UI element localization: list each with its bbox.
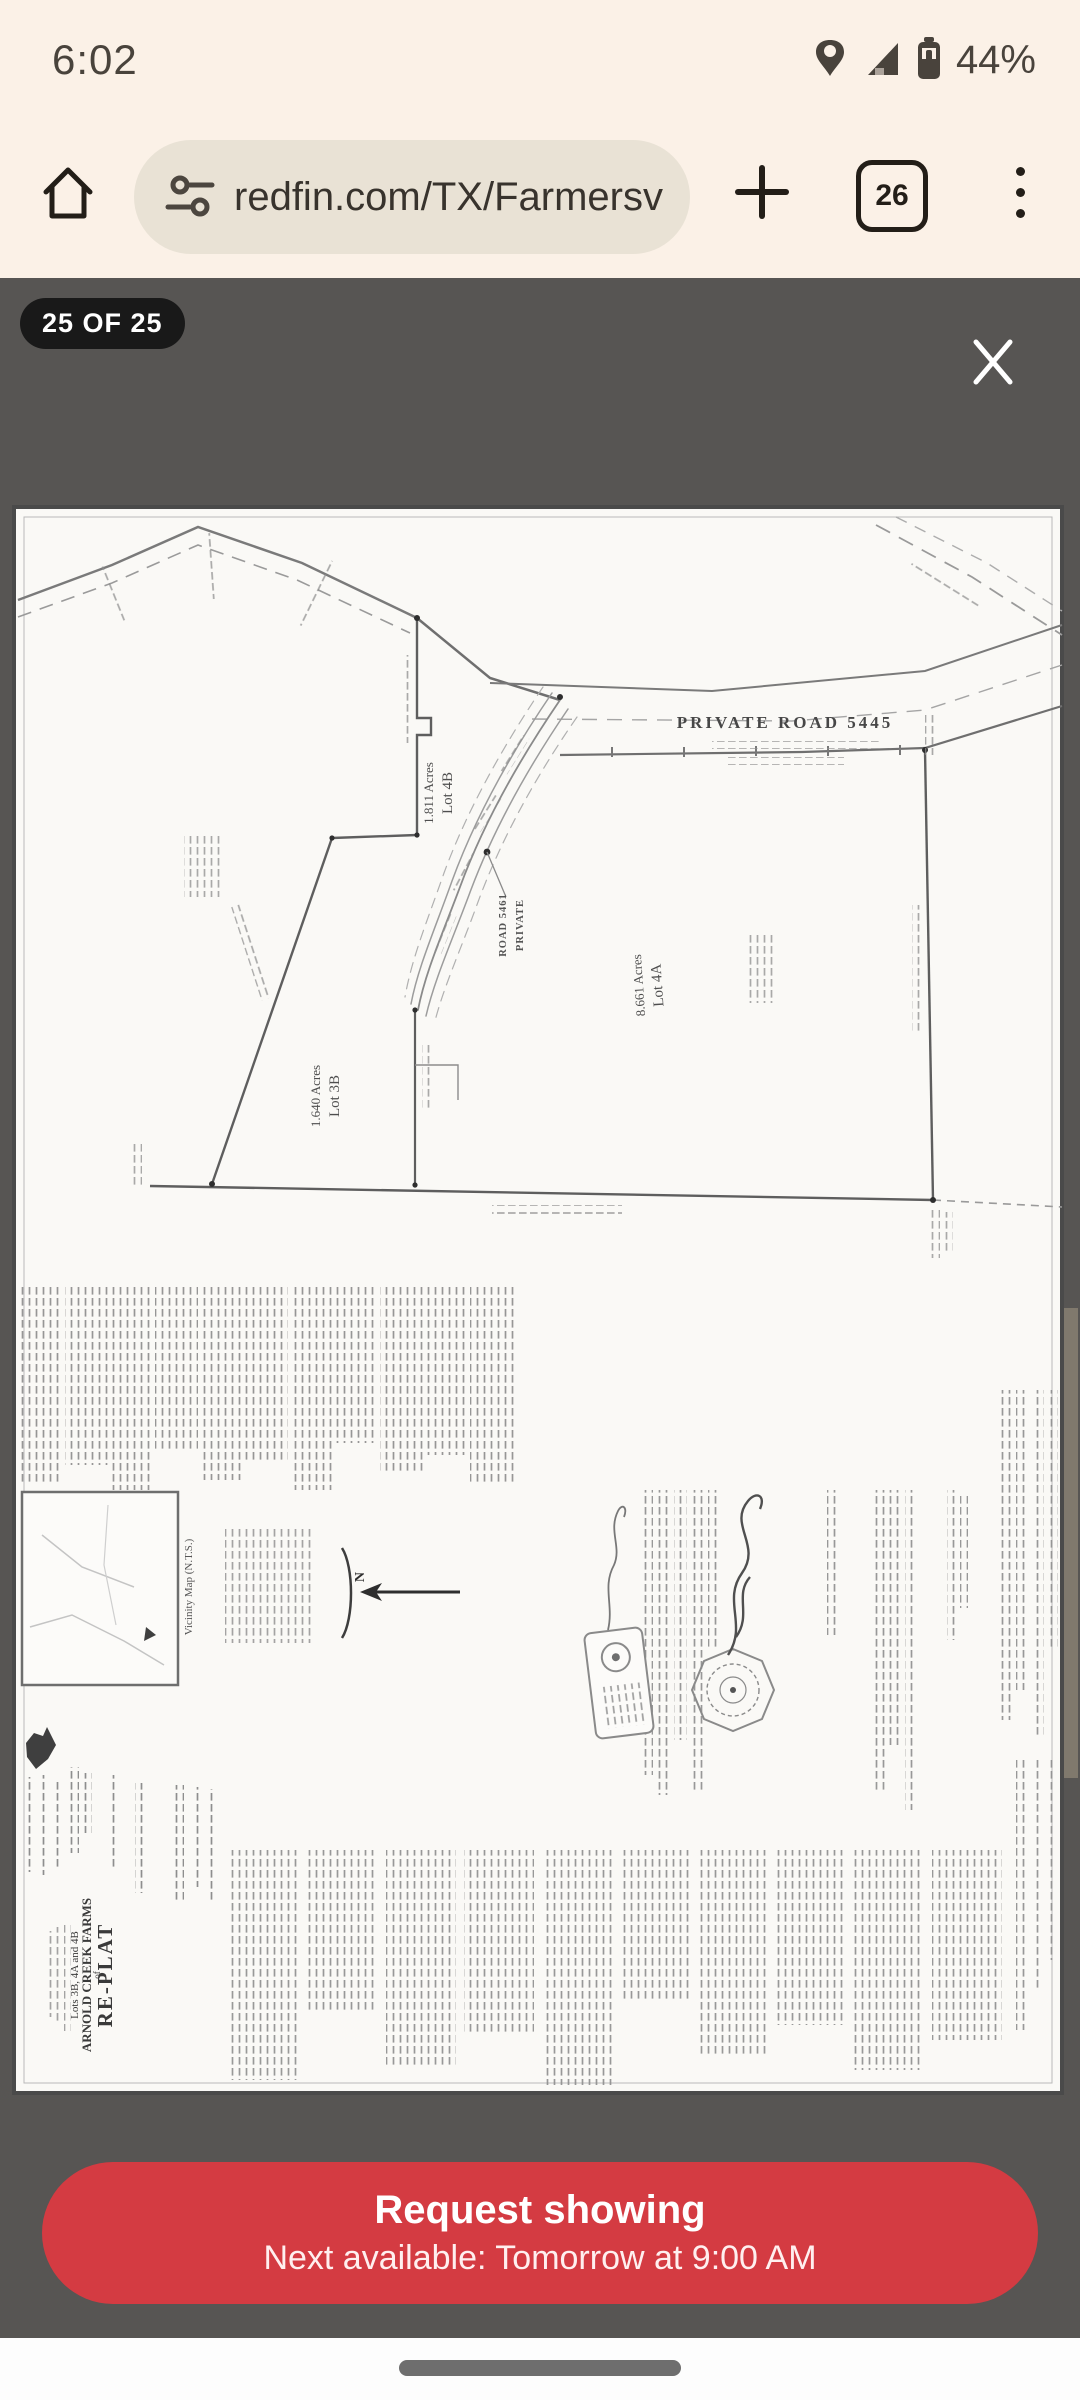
url-bar[interactable]: redfin.com/TX/Farmersv	[134, 140, 690, 254]
plat-notes-block	[230, 1850, 1002, 2085]
private-road-5445-label: PRIVATE ROAD 5445	[677, 713, 894, 732]
browser-toolbar: redfin.com/TX/Farmersv 26	[0, 128, 1080, 268]
plat-title-block: RE-PLAT of ARNOLD CREEK FARMS Lots 3B, 4…	[46, 1898, 117, 2052]
plat-map-photo[interactable]: PRIVATE ROAD 5445 PRIVATE ROAD 5461 Lot …	[12, 505, 1064, 2095]
svg-text:1.811 Acres: 1.811 Acres	[421, 762, 436, 824]
surveyor-company-block	[26, 1727, 217, 1903]
home-handle[interactable]	[399, 2360, 681, 2376]
signal-icon	[862, 37, 904, 84]
new-tab-button[interactable]	[728, 158, 796, 226]
private-road-5461-label: PRIVATE ROAD 5461	[487, 852, 526, 957]
legal-description-block	[20, 1285, 515, 1490]
svg-text:N: N	[353, 1572, 368, 1582]
battery-icon	[916, 35, 942, 86]
signature-2	[728, 1495, 762, 1655]
lot-3b-label: Lot 3B 1.640 Acres	[308, 1065, 343, 1127]
tract-boundary	[150, 618, 1062, 1207]
north-arrow: N	[342, 1548, 460, 1638]
browser-chrome: 6:02 44% redf	[0, 0, 1080, 278]
home-button[interactable]	[36, 162, 100, 226]
svg-text:PRIVATE: PRIVATE	[515, 899, 526, 951]
tab-switcher-button[interactable]: 26	[856, 160, 928, 232]
plat-drawing: PRIVATE ROAD 5445 PRIVATE ROAD 5461 Lot …	[12, 505, 1064, 2095]
survey-annotations	[97, 533, 983, 1258]
next-available-text: Next available: Tomorrow at 9:00 AM	[263, 2239, 816, 2278]
clock: 6:02	[52, 36, 138, 84]
svg-text:Lot 4A: Lot 4A	[649, 963, 668, 1007]
vicinity-map	[22, 1492, 178, 1685]
signature-1	[608, 1507, 625, 1630]
photo-counter-badge: 25 OF 25	[20, 298, 185, 349]
tab-count: 26	[875, 179, 908, 213]
lot-4b-label: Lot 4B 1.811 Acres	[421, 762, 456, 824]
status-bar: 6:02 44%	[0, 30, 1080, 90]
request-showing-label: Request showing	[374, 2188, 705, 2233]
svg-text:Lot 4B: Lot 4B	[440, 772, 456, 814]
scan-edge	[1064, 1308, 1078, 1778]
private-road-5461-band	[405, 687, 577, 1021]
wifi-icon	[810, 36, 850, 85]
lot-4a-label: Lot 4A 8.661 Acres	[629, 954, 668, 1017]
battery-percent: 44%	[956, 38, 1036, 83]
texas-outline-icon	[26, 1727, 56, 1769]
svg-text:ROAD 5461: ROAD 5461	[498, 893, 509, 957]
close-icon[interactable]	[966, 334, 1020, 388]
screen: 6:02 44% redf	[0, 0, 1080, 2400]
status-icons: 44%	[810, 30, 1036, 90]
svg-text:1.640 Acres: 1.640 Acres	[308, 1065, 323, 1127]
road-lines	[18, 517, 1062, 757]
svg-text:ARNOLD CREEK FARMS: ARNOLD CREEK FARMS	[79, 1898, 94, 2052]
notary-seal	[692, 1649, 774, 1731]
svg-text:Lot 3B: Lot 3B	[327, 1075, 343, 1117]
url-text: redfin.com/TX/Farmersv	[234, 175, 663, 220]
menu-button[interactable]	[1000, 162, 1040, 222]
surveyor-stamp	[584, 1627, 654, 1739]
request-showing-button[interactable]: Request showing Next available: Tomorrow…	[42, 2162, 1038, 2304]
vicinity-notes-block	[225, 1527, 313, 1643]
system-gesture-bar	[0, 2338, 1080, 2400]
vicinity-map-label: Vicinity Map (N.T.S.)	[183, 1538, 195, 1635]
site-settings-icon[interactable]	[164, 169, 216, 226]
svg-text:8.661 Acres: 8.661 Acres	[629, 954, 648, 1017]
photo-viewer: 25 OF 25	[0, 278, 1080, 2338]
